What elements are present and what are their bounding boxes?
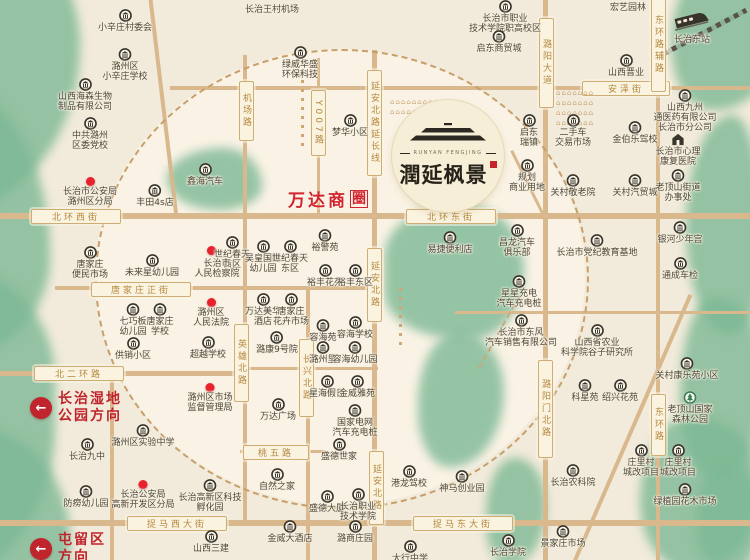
building-icon	[512, 275, 525, 288]
poi-label: 景家庄市场	[540, 539, 585, 549]
building-icon	[83, 246, 96, 259]
direction-callout: ←长治湿地 公园方向	[30, 391, 122, 425]
street-banner: 潞阳门北路	[538, 360, 553, 458]
poi: 易捷便利店	[427, 231, 472, 255]
poi-label: 世纪春天东区	[272, 254, 308, 274]
building-icon	[318, 229, 331, 242]
poi-label: 老顶山街道办事处	[655, 183, 700, 203]
map-canvas: 安泽街北环西街北环东街唐家庄正街北二环路桃五路捉马西大街捉马东大街机场路Y007…	[0, 0, 750, 560]
poi-label: 中共潞州区委党校	[72, 131, 108, 151]
poi: 七巧板幼儿园	[119, 303, 146, 337]
building-icon	[678, 483, 691, 496]
building-icon	[455, 470, 468, 483]
direction-arrow-icon: ←	[30, 538, 52, 560]
train-icon	[671, 8, 713, 39]
poi-label: 潞康9号院	[256, 345, 298, 355]
poi-label: 绿植园花木市场	[653, 497, 716, 507]
poi-label: 金伯乐驾校	[612, 135, 657, 145]
building-icon	[283, 240, 296, 253]
building-icon	[316, 341, 329, 354]
park-tree-icon	[683, 391, 696, 404]
poi-label: 长治市人民检察院	[194, 259, 239, 279]
business-circle-title: 万达商圈	[288, 186, 368, 211]
street-banner: 捉马东大街	[413, 516, 513, 531]
building-icon	[316, 319, 329, 332]
logo-roof-icon	[410, 123, 486, 147]
building-icon	[673, 257, 686, 270]
poi: 长治市公安局潞州区分局	[63, 177, 117, 207]
poi-label: 长治市党纪教育基地	[556, 248, 637, 258]
poi-label: 潞商庄园	[337, 534, 373, 544]
building-icon	[443, 231, 456, 244]
poi: 潞康9号院	[256, 331, 298, 355]
poi-label: 启东商贸城	[476, 44, 521, 54]
poi: 长治王村机场	[245, 4, 299, 15]
poi: 唐家庄便民市场	[72, 246, 108, 280]
poi-label: 超越学校	[190, 350, 226, 360]
building-icon	[198, 163, 211, 176]
business-circle-title-text: 万达商	[288, 186, 348, 211]
poi-label: 绿威华盛环保科技	[282, 60, 318, 80]
poi: 世纪春天东区	[272, 240, 308, 274]
building-icon	[320, 490, 333, 503]
direction-label: 长治湿地 公园方向	[58, 391, 122, 425]
red-dot-icon	[138, 480, 147, 489]
building-icon	[556, 525, 569, 538]
building-icon	[578, 379, 591, 392]
poi-label: 自然之家	[259, 482, 295, 492]
building-icon	[343, 114, 356, 127]
poi-label: 长治王村机场	[245, 5, 299, 15]
poi-label: 容海幼儿园	[332, 355, 377, 365]
poi-label: 裕丰东区	[337, 278, 373, 288]
poi: 长治市心理康复医院	[655, 133, 700, 167]
poi-label: 丰田4s店	[136, 198, 173, 208]
poi-label: 唐家庄便民市场	[72, 260, 108, 280]
poi: 绿植园花木市场	[653, 483, 716, 507]
building-icon	[270, 468, 283, 481]
poi: 裕警苑	[311, 229, 338, 253]
building-icon	[271, 398, 284, 411]
poi: 容海苑	[309, 319, 336, 343]
building-icon	[613, 379, 626, 392]
poi-label: 银河少年宫	[657, 235, 702, 245]
poi: 盛德世家	[321, 438, 357, 462]
poi-label: 庄里村城改项目	[660, 458, 696, 478]
building-icon	[270, 331, 283, 344]
poi: 二手车交易市场	[555, 114, 591, 148]
poi-label: 山西晋业	[608, 68, 644, 78]
poi: 唐家庄花卉市场	[273, 293, 309, 327]
poi: 长治市人民检察院	[194, 258, 239, 279]
building-icon	[566, 464, 579, 477]
poi-label: 裕警苑	[311, 243, 338, 253]
building-icon	[256, 240, 269, 253]
poi-label: 长治市心理康复医院	[655, 147, 700, 167]
direction-callout: ←屯留区 方向	[30, 532, 106, 560]
building-icon	[348, 404, 361, 417]
building-icon	[402, 465, 415, 478]
building-icon	[83, 117, 96, 130]
building-icon	[678, 89, 691, 102]
poi-label: 关村汽贸城	[612, 188, 657, 198]
poi: 长治市党纪教育基地	[556, 234, 637, 258]
poi-label: 易捷便利店	[427, 245, 472, 255]
logo-title: 潤延枫景	[400, 159, 497, 189]
poi: 山西海森生物制品有限公司	[58, 78, 112, 112]
building-icon	[510, 224, 523, 237]
street-banner: 桃五路	[243, 445, 309, 460]
building-icon	[348, 316, 361, 329]
project-logo: RUNYAN FENGJING 潤延枫景	[392, 100, 504, 212]
poi: 潞州区市场监督管理局	[187, 383, 232, 413]
poi: 容海幼儿园	[332, 341, 377, 365]
red-dot-icon	[206, 298, 215, 307]
direction-label: 屯留区 方向	[58, 532, 106, 560]
poi: 容海学校	[337, 316, 373, 340]
poi-label: 星星充电汽车充电桩	[496, 289, 541, 309]
hospital-house-icon	[671, 133, 684, 146]
poi: 景家庄市场	[540, 525, 585, 549]
building-icon	[671, 169, 684, 182]
poi-label: 容海学校	[337, 330, 373, 340]
poi-label: 山西海森生物制品有限公司	[58, 92, 112, 112]
poi: 唐家庄学校	[146, 303, 173, 337]
poi: 长治九中	[69, 438, 105, 462]
poi: 潞州区人民法院	[193, 298, 229, 328]
poi-label: 老顶山国家森林公园	[667, 405, 712, 425]
poi-label: 盛德世家	[321, 452, 357, 462]
poi-label: 金威大酒店	[267, 534, 312, 544]
poi: 小辛庄村委会	[98, 9, 152, 33]
street-banner: Y007路	[311, 90, 326, 156]
poi: 长治东站	[673, 12, 711, 45]
building-icon	[566, 114, 579, 127]
building-icon	[671, 444, 684, 457]
poi: 绿威华盛环保科技	[282, 46, 318, 80]
poi: 庄里村城改项目	[623, 444, 659, 478]
building-icon	[283, 520, 296, 533]
poi-label: 长治职业技术学院	[340, 502, 376, 522]
building-icon	[566, 174, 579, 187]
poi-label: 未来星幼儿园	[125, 268, 179, 278]
building-icon	[680, 357, 693, 370]
business-circle-title-boxed-char: 圈	[350, 190, 368, 208]
poi-label: 长治公安局高新开发区分局	[111, 490, 174, 510]
building-icon	[673, 221, 686, 234]
building-icon	[590, 324, 603, 337]
building-icon	[118, 9, 131, 22]
poi-label: 山西九州通医药有限公司长治市分公司	[653, 103, 716, 133]
poi: 梦华小区	[332, 114, 368, 138]
poi-label: 神马创业园	[439, 484, 484, 494]
poi: 长治职业技术学院	[340, 488, 376, 522]
building-icon	[348, 264, 361, 277]
poi: 庄里村城改项目	[660, 444, 696, 478]
red-dot-icon	[205, 383, 214, 392]
street-banner: 捉马西大街	[127, 516, 227, 531]
poi: 国家电网汽车充电桩	[332, 404, 377, 438]
poi: 港龙驾校	[391, 465, 427, 489]
poi: 超越学校	[190, 336, 226, 360]
poi: 万达广场	[260, 398, 296, 422]
building-icon	[619, 54, 632, 67]
poi-label: 鑫海汽车	[187, 177, 223, 187]
poi: 银河少年宫	[657, 221, 702, 245]
building-icon	[520, 159, 533, 172]
poi: 长治农科院	[550, 464, 595, 488]
poi: 太行中学	[392, 540, 428, 560]
poi: 金威大酒店	[267, 520, 312, 544]
poi: 长治市职业技术学院职高校区	[469, 0, 541, 34]
poi: 裕丰东区	[337, 264, 373, 288]
poi: 关村敬老院	[550, 174, 595, 198]
poi: 自然之家	[259, 468, 295, 492]
red-dot-icon	[85, 177, 94, 186]
poi-label: 规划商业用地	[509, 173, 545, 193]
building-icon	[590, 234, 603, 247]
poi-label: 庄里村城改项目	[623, 458, 659, 478]
poi: 长治学院	[490, 534, 526, 558]
poi: 关村汽贸城	[612, 174, 657, 198]
poi-label: 科星苑	[571, 393, 598, 403]
poi: 启东商贸城	[476, 30, 521, 54]
green-area	[697, 465, 750, 560]
building-icon	[80, 438, 93, 451]
poi: 长治高新区科技孵化园	[178, 479, 241, 513]
poi-label: 关村敬老院	[550, 188, 595, 198]
poi-label: 长治市公安局潞州区分局	[63, 187, 117, 207]
street-banner: 英雄北路	[234, 324, 249, 402]
building-icon	[148, 184, 161, 197]
poi-label: 山西三建	[193, 544, 229, 554]
building-icon	[204, 530, 217, 543]
poi: 山西省农业科学院谷子研究所	[561, 324, 633, 358]
building-icon	[348, 341, 361, 354]
building-icon	[203, 479, 216, 492]
poi-label: 关村康乐苑小区	[655, 371, 718, 381]
street-banner: 唐家庄正街	[91, 282, 191, 297]
poi-label: 长治农科院	[550, 478, 595, 488]
poi-label: 绍兴花苑	[602, 393, 638, 403]
poi: 宏艺园林	[610, 2, 646, 13]
building-icon	[320, 375, 333, 388]
building-icon	[348, 520, 361, 533]
poi: 长治公安局高新开发区分局	[111, 480, 174, 510]
poi: 长治市东风汽车销售有限公司	[485, 314, 557, 348]
poi: 启东瑞镇	[520, 114, 538, 148]
poi-label: 梦华小区	[332, 128, 368, 138]
building-icon	[522, 114, 535, 127]
poi: 老顶山国家森林公园	[667, 391, 712, 425]
poi: 规划商业用地	[509, 159, 545, 193]
poi-label: 山西省农业科学院谷子研究所	[561, 338, 633, 358]
poi: 绍兴花苑	[602, 379, 638, 403]
building-icon	[628, 121, 641, 134]
poi: 潞商庄园	[337, 520, 373, 544]
poi-label: 潞州区市场监督管理局	[187, 393, 232, 413]
building-icon	[126, 303, 139, 316]
street-banner: 潞阳大道	[539, 18, 554, 108]
poi: 金伯乐驾校	[612, 121, 657, 145]
poi-label: 长治学院	[490, 548, 526, 558]
poi: 星星充电汽车充电桩	[496, 275, 541, 309]
poi-label: 唐家庄花卉市场	[273, 307, 309, 327]
poi-label: 长治市东风汽车销售有限公司	[485, 328, 557, 348]
building-icon	[126, 337, 139, 350]
building-icon	[318, 264, 331, 277]
poi: 供销小区	[115, 337, 151, 361]
poi: 金威雅苑	[339, 375, 375, 399]
poi-label: 潞州区实验中学	[111, 438, 174, 448]
building-icon	[225, 236, 238, 249]
poi: 防痨幼儿园	[63, 485, 108, 509]
building-icon	[201, 336, 214, 349]
building-icon	[628, 174, 641, 187]
poi: 山西三建	[193, 530, 229, 554]
poi-label: 太行中学	[392, 554, 428, 560]
building-icon	[492, 30, 505, 43]
building-icon	[118, 48, 131, 61]
street-banner: 东环路辅路	[651, 0, 666, 92]
poi: 丰田4s店	[136, 184, 173, 208]
building-icon	[153, 303, 166, 316]
poi-label: 港龙驾校	[391, 479, 427, 489]
building-icon	[256, 293, 269, 306]
building-icon	[136, 424, 149, 437]
poi-label: 长治高新区科技孵化园	[178, 493, 241, 513]
poi: 未来星幼儿园	[125, 254, 179, 278]
building-icon	[284, 293, 297, 306]
building-icon	[403, 540, 416, 553]
poi-label: 供销小区	[115, 351, 151, 361]
poi: 山西九州通医药有限公司长治市分公司	[653, 89, 716, 133]
poi-label: 二手车交易市场	[555, 128, 591, 148]
building-icon	[501, 534, 514, 547]
poi: 潞州区实验中学	[111, 424, 174, 448]
direction-arrow-icon: ←	[30, 397, 52, 419]
street-banner: 延安北路延长线	[367, 70, 382, 176]
poi-label: 长治九中	[69, 452, 105, 462]
poi: 昌龙汽车俱乐部	[499, 224, 535, 258]
poi-label: 防痨幼儿园	[63, 499, 108, 509]
street-banner: 北二环路	[34, 366, 124, 381]
poi: 关村康乐苑小区	[655, 357, 718, 381]
street-banner: 北环西街	[31, 209, 121, 224]
poi-label: 七巧板幼儿园	[119, 317, 146, 337]
poi: 中共潞州区委党校	[72, 117, 108, 151]
building-icon	[332, 438, 345, 451]
poi-label: 宏艺园林	[610, 3, 646, 13]
poi-label: 昌龙汽车俱乐部	[499, 238, 535, 258]
poi: 鑫海汽车	[187, 163, 223, 187]
poi-label: 万达广场	[260, 412, 296, 422]
building-icon	[293, 46, 306, 59]
poi-label: 通成车检	[662, 271, 698, 281]
building-icon	[350, 375, 363, 388]
poi: 潞州区小辛庄学校	[102, 48, 147, 82]
building-icon	[634, 444, 647, 457]
building-icon	[351, 488, 364, 501]
poi: 山西晋业	[608, 54, 644, 78]
poi: 老顶山街道办事处	[655, 169, 700, 203]
poi-label: 国家电网汽车充电桩	[332, 418, 377, 438]
logo-subtitle: RUNYAN FENGJING	[400, 150, 495, 156]
poi-label: 金威雅苑	[339, 389, 375, 399]
building-icon	[514, 314, 527, 327]
street-banner: 机场路	[239, 81, 254, 141]
poi: 神马创业园	[439, 470, 484, 494]
building-icon	[145, 254, 158, 267]
logo-seal-icon	[490, 161, 497, 168]
poi-label: 启东瑞镇	[520, 128, 538, 148]
poi: 科星苑	[571, 379, 598, 403]
poi-label: 唐家庄学校	[146, 317, 173, 337]
building-icon	[78, 78, 91, 91]
building-icon	[79, 485, 92, 498]
poi: 通成车检	[662, 257, 698, 281]
poi-label: 潞州区人民法院	[193, 308, 229, 328]
poi-label: 小辛庄村委会	[98, 23, 152, 33]
building-icon	[498, 0, 511, 13]
